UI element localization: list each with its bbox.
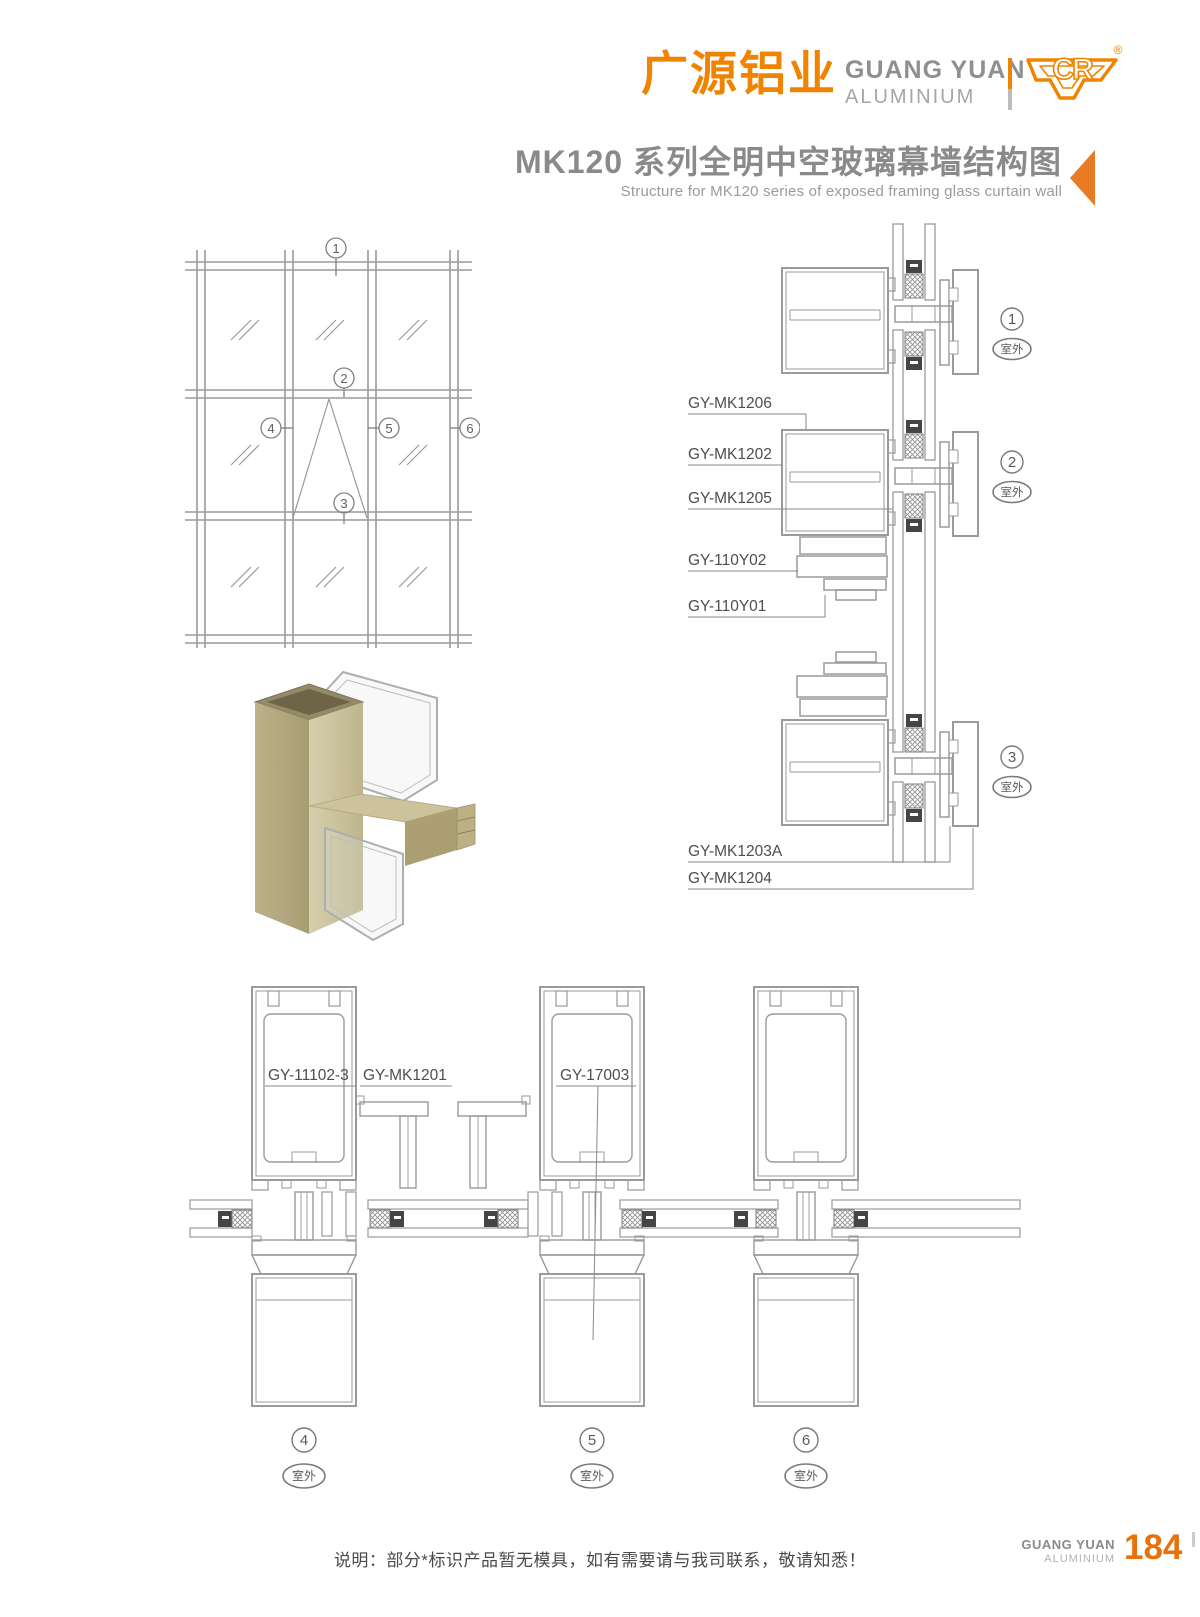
registered-trademark-icon: ® (1114, 43, 1123, 57)
callout-number: 5 (385, 421, 392, 436)
brand-logo-english: GUANG YUAN ALUMINIUM (845, 58, 1025, 107)
outdoor-label: 室外 (1001, 485, 1024, 499)
part-label: GY-MK1204 (688, 870, 772, 887)
vertical-section-callouts: 1 室外 2 室外 3 室外 (993, 308, 1031, 798)
mullion-detail-6 (754, 987, 858, 1406)
outdoor-label: 室外 (794, 1468, 818, 1483)
part-label: GY-MK1206 (688, 395, 772, 412)
elevation-callout-numbers: 1 2 3 4 5 6 (267, 241, 473, 511)
catalog-page: 广源铝业 GUANG YUAN ALUMINIUM CR ® MK120 系列全… (0, 0, 1200, 1617)
brand-mark-icon: CR ® (1024, 42, 1124, 116)
label-leader-lines (688, 414, 973, 889)
label-leader-lines (265, 1086, 636, 1340)
outdoor-label: 室外 (580, 1468, 604, 1483)
elevation-grid (185, 250, 472, 648)
series-code: MK120 (515, 144, 623, 180)
brand-mark-letters: CR (1052, 53, 1094, 86)
outdoor-label: 室外 (1001, 780, 1024, 794)
page-title: MK120 系列全明中空玻璃幕墙结构图 (515, 146, 1062, 178)
callout-number: 6 (466, 421, 473, 436)
horizontal-section-labels: GY-11102-3 GY-MK1201 GY-17003 (268, 1067, 629, 1084)
mullion-detail-5 (540, 987, 644, 1406)
callout-number: 5 (588, 1432, 596, 1449)
page-number: 184 (1124, 1530, 1182, 1565)
callout-number: 2 (1008, 454, 1016, 471)
callout-number: 1 (1008, 311, 1016, 328)
transom-detail-2 (782, 430, 978, 536)
footer-brand-name: GUANG YUAN (975, 1538, 1115, 1551)
callout-number: 6 (802, 1432, 810, 1449)
footer-brand: GUANG YUAN ALUMINIUM (975, 1538, 1115, 1565)
footer-brand-industry: ALUMINIUM (975, 1554, 1115, 1565)
mullion-detail-4 (252, 987, 356, 1406)
callout-number: 4 (267, 421, 274, 436)
horizontal-section-callouts: 4 室外 5 室外 6 室外 (283, 1428, 827, 1488)
glazing-band-spacers (218, 1210, 868, 1228)
horizontal-section-drawing: GY-11102-3 GY-MK1201 GY-17003 4 室外 5 室外 … (160, 940, 1120, 1500)
vertical-section-labels: GY-MK1206 GY-MK1202 GY-MK1205 GY-110Y02 … (688, 395, 783, 887)
callout-number: 3 (340, 496, 347, 511)
part-label: GY-17003 (560, 1067, 629, 1084)
vertical-section-drawing: GY-MK1206 GY-MK1202 GY-MK1205 GY-110Y02 … (640, 222, 1060, 892)
vent-jamb-profiles (322, 1096, 562, 1236)
brand-logo-chinese: 广源铝业 (641, 50, 837, 97)
callout-number: 1 (332, 241, 339, 256)
part-label: GY-11102-3 (268, 1067, 349, 1084)
profile-3d-render (225, 658, 480, 948)
glazing-bands (190, 1200, 1020, 1237)
glazing-spacers (905, 260, 923, 822)
glass-panel-lower (325, 828, 403, 940)
page-subtitle: Structure for MK120 series of exposed fr… (515, 184, 1062, 199)
part-label: GY-110Y02 (688, 552, 766, 569)
transom-detail-1 (782, 268, 978, 374)
part-label: GY-MK1202 (688, 446, 772, 463)
part-label: GY-MK1203A (688, 843, 783, 860)
elevation-drawing: 1 2 3 4 5 6 (160, 232, 480, 652)
openable-vent-symbol (293, 399, 367, 518)
trim-mark (1192, 1532, 1195, 1547)
left-arrow-icon (1070, 150, 1095, 206)
brand-industry-en: ALUMINIUM (845, 87, 1025, 107)
outdoor-label: 室外 (292, 1468, 316, 1483)
glazing-unit-column (893, 224, 935, 862)
callout-number: 4 (300, 1432, 308, 1449)
vent-sash-profiles (797, 537, 887, 716)
header-divider (1008, 58, 1012, 110)
callout-number: 2 (340, 371, 347, 386)
outdoor-label: 室外 (1001, 342, 1024, 356)
glass-symbols (231, 320, 427, 587)
callout-number: 3 (1008, 749, 1016, 766)
part-label: GY-110Y01 (688, 598, 766, 615)
transom-detail-3 (782, 720, 978, 826)
part-label: GY-MK1205 (688, 490, 772, 507)
page-title-block: MK120 系列全明中空玻璃幕墙结构图 Structure for MK120 … (515, 146, 1062, 199)
part-label: GY-MK1201 (363, 1067, 447, 1084)
elevation-callouts (261, 238, 480, 524)
brand-name-en: GUANG YUAN (845, 58, 1025, 83)
title-chinese: 系列全明中空玻璃幕墙结构图 (633, 144, 1062, 180)
